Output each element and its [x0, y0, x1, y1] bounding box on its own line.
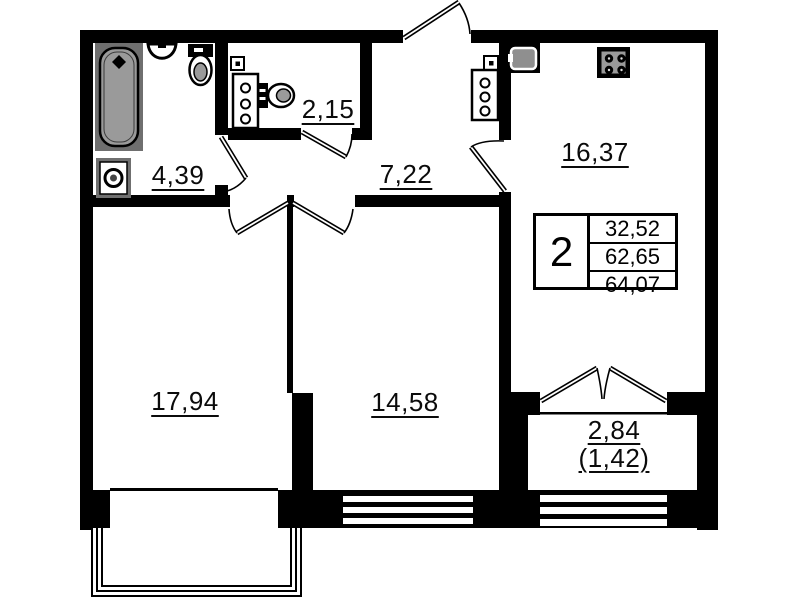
living-area-total: 32,52 — [590, 216, 675, 244]
bath-sink-icon — [148, 43, 176, 58]
summary-areas: 32,52 62,65 64,07 — [590, 216, 675, 287]
kitchen-door-icon — [471, 141, 505, 191]
entrance-door-icon — [404, 2, 470, 38]
apartment-summary-table: 2 32,52 62,65 64,07 — [533, 213, 678, 290]
window-balcony-icon — [540, 495, 667, 526]
balcony-area-coefficient: (1,42) — [544, 444, 684, 472]
bedroom-door-icon — [293, 203, 353, 233]
wc-area-label: 2,15 — [278, 94, 378, 125]
washing-machine-icon — [96, 158, 131, 198]
kitchen-area-label: 16,37 — [535, 137, 655, 168]
floor-plan-drawing — [0, 0, 799, 600]
hall-meter-box-icon — [484, 56, 498, 70]
hallway-area-label: 7,22 — [356, 159, 456, 190]
apartment-area: 62,65 — [590, 244, 675, 272]
rooms-count: 2 — [536, 216, 590, 287]
floor-plan: 4,39 2,15 7,22 16,37 17,94 14,58 2,84 (1… — [0, 0, 799, 600]
living-room-door-icon — [229, 203, 288, 233]
bedroom-area-label: 14,58 — [345, 387, 465, 418]
window-room1-icon — [343, 496, 473, 524]
living-room-area-label: 17,94 — [125, 386, 245, 417]
total-area: 64,07 — [590, 272, 675, 298]
bay-window-icon — [92, 528, 301, 596]
hall-shaft-icon — [472, 70, 498, 120]
balcony-area-label: 2,84 (1,42) — [544, 416, 684, 472]
wc-meter-box-icon — [231, 57, 244, 70]
balcony-french-door-icon — [541, 368, 666, 401]
wc-shaft-icon — [233, 74, 258, 128]
wc-door-icon — [302, 132, 352, 157]
bathtub-icon — [95, 43, 143, 151]
kitchen-sink-icon — [507, 43, 540, 73]
stove-icon — [597, 47, 630, 78]
balcony-area-value: 2,84 — [544, 416, 684, 444]
bathroom-area-label: 4,39 — [128, 160, 228, 191]
toilet-icon — [188, 44, 213, 85]
